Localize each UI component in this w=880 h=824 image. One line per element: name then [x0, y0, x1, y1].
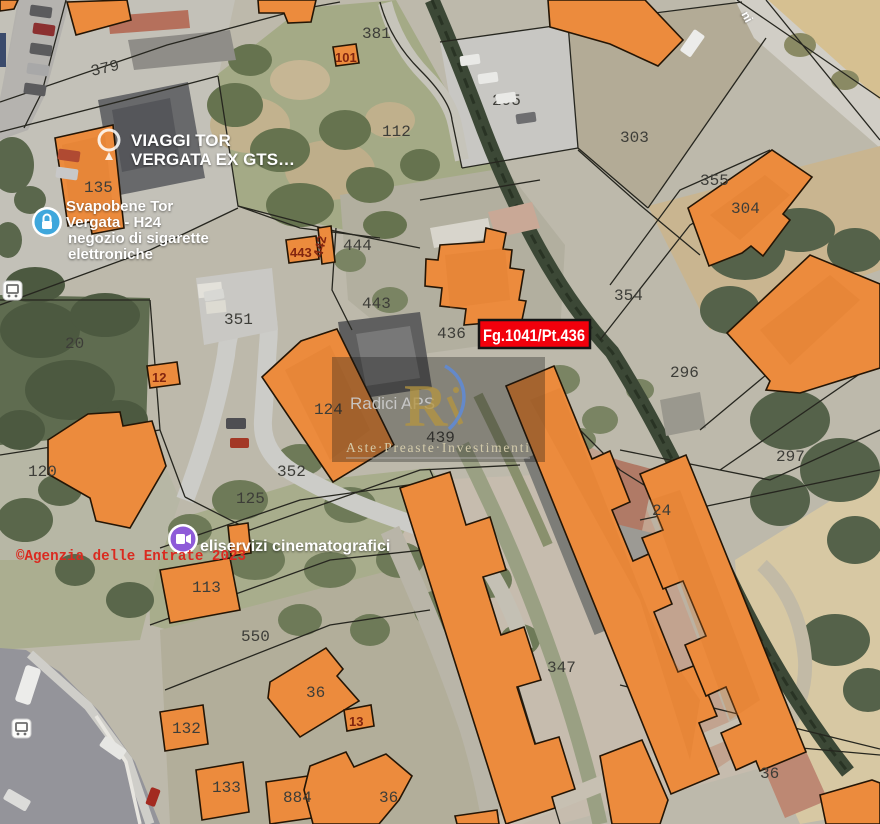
svg-text:444: 444	[343, 237, 372, 255]
svg-text:36: 36	[760, 765, 779, 783]
svg-text:Aste·Preaste·Investimenti: Aste·Preaste·Investimenti	[346, 440, 530, 455]
svg-text:297: 297	[776, 448, 805, 466]
svg-text:elettroniche: elettroniche	[68, 246, 153, 263]
svg-text:R: R	[404, 373, 448, 439]
svg-text:303: 303	[620, 129, 649, 147]
svg-text:Fg.1041/Pt.436: Fg.1041/Pt.436	[483, 326, 585, 345]
svg-text:113: 113	[192, 579, 221, 597]
svg-text:550: 550	[241, 628, 270, 646]
svg-text:296: 296	[670, 364, 699, 382]
svg-text:VIAGGI TOR: VIAGGI TOR	[131, 131, 231, 150]
svg-text:101: 101	[335, 50, 357, 65]
svg-text:135: 135	[84, 179, 113, 197]
svg-text:351: 351	[224, 311, 253, 329]
svg-text:24: 24	[652, 502, 671, 520]
svg-text:347: 347	[547, 659, 576, 677]
svg-text:13: 13	[349, 714, 363, 729]
svg-text:443: 443	[362, 295, 391, 313]
svg-text:Svapobene Tor: Svapobene Tor	[66, 198, 173, 215]
svg-text:381: 381	[362, 25, 391, 43]
svg-text:20: 20	[65, 335, 84, 353]
svg-text:Vergata - H24: Vergata - H24	[66, 214, 162, 231]
svg-text:12: 12	[152, 370, 166, 385]
svg-text:304: 304	[731, 200, 760, 218]
svg-text:©Agenzia delle Entrate 2023: ©Agenzia delle Entrate 2023	[16, 548, 246, 565]
svg-text:112: 112	[382, 123, 411, 141]
svg-text:125: 125	[236, 490, 265, 508]
svg-text:negozio di sigarette: negozio di sigarette	[68, 230, 209, 247]
svg-text:436: 436	[437, 325, 466, 343]
svg-text:133: 133	[212, 779, 241, 797]
svg-text:884: 884	[283, 789, 312, 807]
svg-text:36: 36	[306, 684, 325, 702]
svg-text:354: 354	[614, 287, 643, 305]
svg-text:443: 443	[290, 245, 312, 260]
svg-text:120: 120	[28, 463, 57, 481]
svg-text:355: 355	[700, 172, 729, 190]
svg-text:36: 36	[379, 789, 398, 807]
svg-text:132: 132	[172, 720, 201, 738]
svg-text:VERGATA EX GTS…: VERGATA EX GTS…	[131, 150, 295, 169]
svg-text:352: 352	[277, 463, 306, 481]
